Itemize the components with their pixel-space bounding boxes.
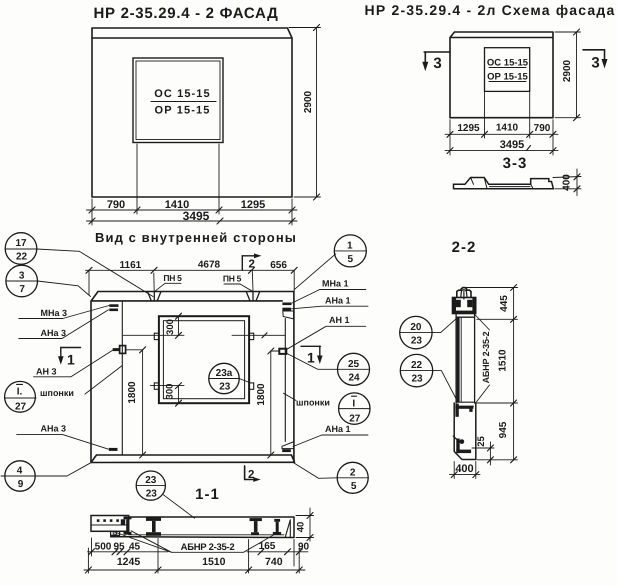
svg-text:МНа 1: МНа 1 (322, 279, 349, 289)
svg-text:445: 445 (499, 295, 510, 312)
svg-text:1245: 1245 (117, 556, 141, 568)
svg-text:23: 23 (411, 336, 423, 347)
svg-text:2: 2 (350, 467, 356, 478)
svg-text:400: 400 (455, 463, 473, 475)
svg-text:95: 95 (113, 542, 125, 553)
svg-text:90: 90 (298, 541, 310, 552)
svg-text:2900: 2900 (303, 90, 314, 113)
svg-text:ОС 15-15: ОС 15-15 (154, 88, 211, 100)
svg-text:АБНР 2-35-2: АБНР 2-35-2 (181, 542, 235, 553)
svg-text:5: 5 (348, 254, 354, 265)
svg-text:20: 20 (410, 322, 422, 333)
svg-text:2: 2 (248, 469, 254, 481)
svg-text:1295: 1295 (457, 123, 480, 134)
svg-text:1295: 1295 (241, 199, 265, 211)
svg-text:ОР 15-15: ОР 15-15 (155, 105, 211, 117)
svg-text:1161: 1161 (120, 260, 142, 271)
svg-text:АНа 3: АНа 3 (41, 424, 67, 434)
svg-text:9: 9 (18, 479, 24, 490)
svg-text:27: 27 (15, 402, 27, 413)
svg-text:5: 5 (351, 481, 357, 492)
svg-text:1: 1 (67, 352, 75, 368)
svg-text:1: 1 (307, 350, 315, 366)
svg-text:22: 22 (411, 360, 423, 371)
svg-text:4: 4 (17, 466, 23, 477)
svg-text:500: 500 (95, 541, 112, 552)
svg-text:2900: 2900 (562, 59, 573, 82)
svg-text:шпонки: шпонки (40, 388, 74, 398)
svg-text:23: 23 (219, 382, 231, 393)
svg-text:23: 23 (411, 374, 423, 385)
svg-text:7: 7 (19, 284, 25, 295)
svg-text:АНа 1: АНа 1 (325, 295, 351, 305)
svg-text:АБНР 2-35-2: АБНР 2-35-2 (481, 331, 491, 383)
svg-text:945: 945 (498, 421, 509, 438)
svg-text:1410: 1410 (496, 123, 519, 134)
svg-text:25: 25 (476, 436, 487, 447)
svg-text:40: 40 (296, 522, 307, 533)
svg-text:17: 17 (15, 238, 27, 249)
svg-text:I: I (352, 398, 355, 409)
svg-text:3-3: 3-3 (503, 155, 528, 172)
svg-text:300: 300 (165, 384, 176, 400)
svg-text:1800: 1800 (256, 383, 267, 406)
svg-text:АН 1: АН 1 (329, 315, 350, 325)
svg-text:ОС 15-15: ОС 15-15 (487, 58, 529, 69)
svg-text:790: 790 (534, 123, 551, 134)
svg-text:400: 400 (562, 174, 573, 191)
svg-text:Вид с внутренней стороны: Вид с внутренней стороны (95, 230, 297, 245)
svg-text:1: 1 (347, 240, 353, 251)
svg-text:27: 27 (349, 413, 361, 424)
svg-text:МНа 3: МНа 3 (41, 308, 68, 318)
svg-text:22: 22 (16, 252, 28, 263)
svg-text:2-2: 2-2 (452, 239, 477, 256)
svg-text:3495: 3495 (183, 209, 210, 223)
svg-text:ОР 15-15: ОР 15-15 (487, 72, 528, 83)
svg-text:300: 300 (165, 319, 176, 335)
svg-text:3: 3 (19, 271, 25, 282)
svg-text:НР 2-35.29.4 - 2 ФАСАД: НР 2-35.29.4 - 2 ФАСАД (93, 5, 278, 22)
svg-text:740: 740 (265, 556, 283, 568)
svg-text:АН 3: АН 3 (36, 367, 57, 377)
svg-text:НР 2-35.29.4 - 2л Схема фасада: НР 2-35.29.4 - 2л Схема фасада (365, 2, 616, 18)
svg-text:23: 23 (145, 475, 157, 486)
svg-text:3: 3 (591, 55, 599, 72)
svg-text:шпонки: шпонки (296, 398, 330, 408)
svg-text:23а: 23а (216, 368, 233, 379)
svg-text:165: 165 (259, 541, 276, 552)
svg-text:23: 23 (146, 489, 158, 500)
svg-text:2: 2 (249, 259, 255, 271)
svg-text:3495: 3495 (500, 139, 524, 151)
svg-text:1510: 1510 (498, 349, 509, 372)
svg-text:3: 3 (433, 55, 441, 72)
svg-text:ПН 5: ПН 5 (163, 273, 182, 283)
svg-text:25: 25 (348, 359, 360, 370)
svg-text:1-1: 1-1 (195, 486, 220, 503)
svg-text:I.: I. (17, 387, 23, 398)
svg-text:1510: 1510 (202, 556, 226, 568)
svg-text:4678: 4678 (198, 260, 221, 271)
svg-text:790: 790 (107, 199, 125, 211)
svg-text:ПН 5: ПН 5 (223, 274, 242, 284)
svg-text:656: 656 (270, 260, 287, 271)
svg-text:45: 45 (129, 541, 141, 552)
svg-text:1800: 1800 (127, 381, 138, 404)
svg-text:АНа 1: АНа 1 (325, 424, 351, 434)
svg-text:АНа 3: АНа 3 (41, 328, 67, 338)
svg-text:24: 24 (348, 372, 360, 383)
